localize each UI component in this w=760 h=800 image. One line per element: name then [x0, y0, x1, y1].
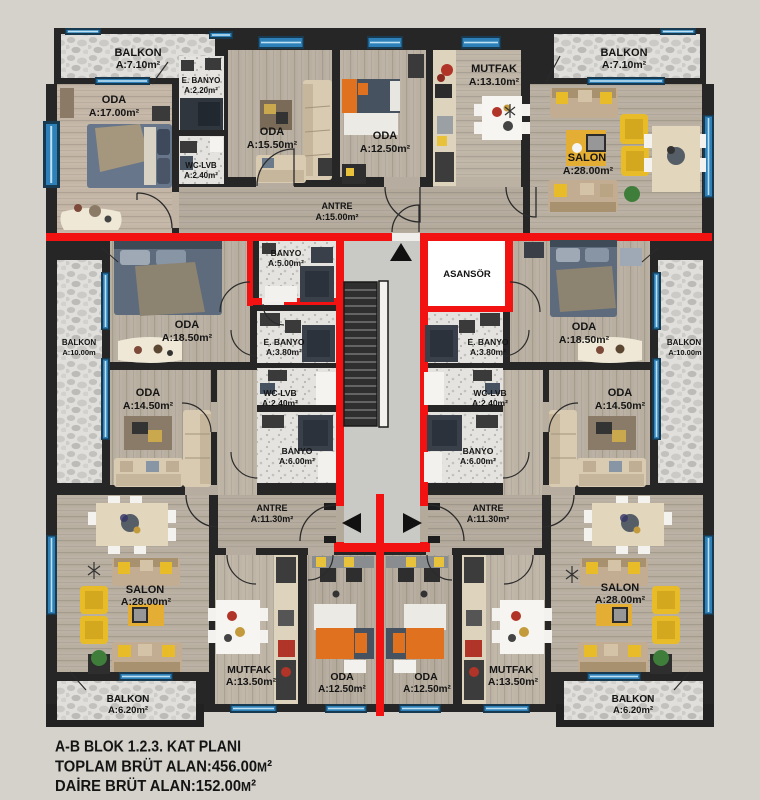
svg-text:A:28.00m²: A:28.00m²	[563, 165, 614, 177]
svg-text:A:15.00m²: A:15.00m²	[315, 212, 358, 222]
svg-text:A:11.30m²: A:11.30m²	[251, 514, 294, 524]
svg-text:A:17.00m²: A:17.00m²	[89, 107, 140, 119]
svg-text:WC-LVB: WC-LVB	[263, 388, 296, 398]
svg-text:A:7.10m²: A:7.10m²	[602, 59, 647, 71]
svg-text:ODA: ODA	[330, 671, 354, 683]
svg-text:A:28.00m²: A:28.00m²	[121, 596, 172, 608]
svg-text:A:10.00m: A:10.00m	[62, 348, 96, 357]
svg-text:TOPLAM BRÜT ALAN:456.00M²: TOPLAM BRÜT ALAN:456.00M²	[55, 757, 272, 776]
svg-text:ANTRE: ANTRE	[257, 503, 288, 513]
svg-text:SALON: SALON	[568, 152, 607, 164]
svg-text:A:12.50m²: A:12.50m²	[403, 684, 451, 695]
svg-text:A:7.10m²: A:7.10m²	[116, 59, 161, 71]
svg-text:A:3.80m²: A:3.80m²	[470, 347, 506, 357]
svg-text:BALKON: BALKON	[667, 338, 701, 347]
svg-text:DAİRE BRÜT ALAN:152.00M²: DAİRE BRÜT ALAN:152.00M²	[55, 776, 256, 795]
svg-text:A:13.50m²: A:13.50m²	[488, 676, 539, 688]
svg-text:ODA: ODA	[414, 671, 438, 683]
svg-text:A:15.50m²: A:15.50m²	[247, 139, 298, 151]
svg-text:BALKON: BALKON	[62, 338, 96, 347]
svg-text:BANYO: BANYO	[282, 446, 313, 456]
svg-text:A:18.50m²: A:18.50m²	[559, 334, 610, 346]
svg-text:A:3.80m²: A:3.80m²	[266, 347, 302, 357]
svg-text:MUTFAK: MUTFAK	[227, 664, 271, 676]
svg-text:A:6.20m²: A:6.20m²	[108, 705, 148, 716]
svg-text:A:6.00m²: A:6.00m²	[279, 456, 315, 466]
svg-text:A:10.00m: A:10.00m	[668, 348, 702, 357]
svg-text:BALKON: BALKON	[114, 47, 161, 59]
svg-text:MUTFAK: MUTFAK	[471, 63, 517, 75]
svg-text:A:2.20m²: A:2.20m²	[184, 86, 218, 95]
svg-text:ANTRE: ANTRE	[473, 503, 504, 513]
svg-text:E. BANYO: E. BANYO	[467, 337, 508, 347]
svg-text:ODA: ODA	[175, 319, 200, 331]
svg-text:BALKON: BALKON	[107, 694, 150, 705]
svg-text:A:18.50m²: A:18.50m²	[162, 332, 213, 344]
svg-text:A:5.00m²: A:5.00m²	[268, 258, 304, 268]
svg-text:ODA: ODA	[608, 387, 633, 399]
svg-text:ODA: ODA	[102, 94, 127, 106]
svg-text:ODA: ODA	[136, 387, 161, 399]
svg-text:E. BANYO: E. BANYO	[263, 337, 304, 347]
svg-text:ODA: ODA	[260, 126, 285, 138]
svg-text:A:11.30m²: A:11.30m²	[467, 514, 510, 524]
svg-text:A:13.50m²: A:13.50m²	[226, 676, 277, 688]
svg-text:A:2.40m²: A:2.40m²	[262, 398, 298, 408]
svg-text:SALON: SALON	[601, 582, 640, 594]
svg-text:BANYO: BANYO	[271, 248, 302, 258]
svg-text:A:2.40m²: A:2.40m²	[472, 398, 508, 408]
svg-text:A:6.20m²: A:6.20m²	[613, 705, 653, 716]
svg-text:A:28.00m²: A:28.00m²	[595, 594, 646, 606]
svg-text:BALKON: BALKON	[600, 47, 647, 59]
svg-text:E. BANYO: E. BANYO	[182, 76, 221, 85]
svg-text:MUTFAK: MUTFAK	[489, 664, 533, 676]
svg-text:SALON: SALON	[126, 584, 165, 596]
svg-text:A:14.50m²: A:14.50m²	[123, 400, 174, 412]
svg-text:A:13.10m²: A:13.10m²	[469, 76, 520, 88]
svg-text:A:2.40m²: A:2.40m²	[184, 171, 218, 180]
svg-text:BALKON: BALKON	[612, 694, 655, 705]
svg-text:ASANSÖR: ASANSÖR	[443, 269, 491, 280]
svg-text:BANYO: BANYO	[463, 446, 494, 456]
svg-text:ODA: ODA	[373, 130, 398, 142]
svg-text:A:14.50m²: A:14.50m²	[595, 400, 646, 412]
svg-text:A:6.00m²: A:6.00m²	[460, 456, 496, 466]
svg-text:ANTRE: ANTRE	[322, 201, 353, 211]
svg-text:ODA: ODA	[572, 321, 597, 333]
svg-text:WC-LVB: WC-LVB	[185, 161, 217, 170]
svg-text:A:12.50m²: A:12.50m²	[318, 684, 366, 695]
svg-text:A:12.50m²: A:12.50m²	[360, 143, 411, 155]
svg-text:WC-LVB: WC-LVB	[473, 388, 506, 398]
svg-text:A-B BLOK 1.2.3. KAT PLANI: A-B BLOK 1.2.3. KAT PLANI	[55, 739, 241, 756]
